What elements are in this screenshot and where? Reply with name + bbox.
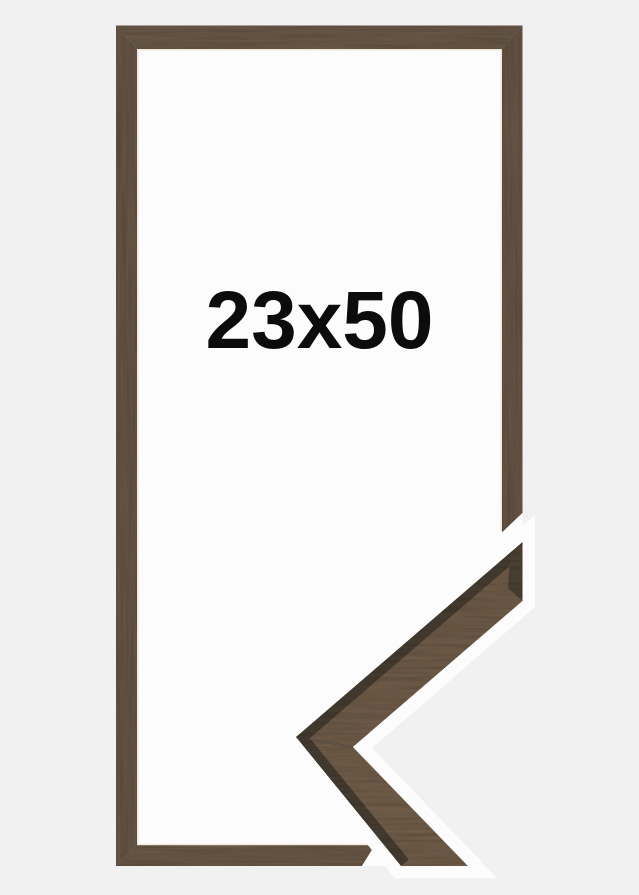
frame-illustration — [0, 0, 639, 895]
frame-border-top — [116, 26, 523, 50]
frame-border-left — [116, 26, 137, 867]
frame-border-bottom — [116, 845, 375, 866]
product-image[interactable]: 23x50 — [0, 0, 639, 895]
frame-size-label: 23x50 — [116, 274, 523, 368]
